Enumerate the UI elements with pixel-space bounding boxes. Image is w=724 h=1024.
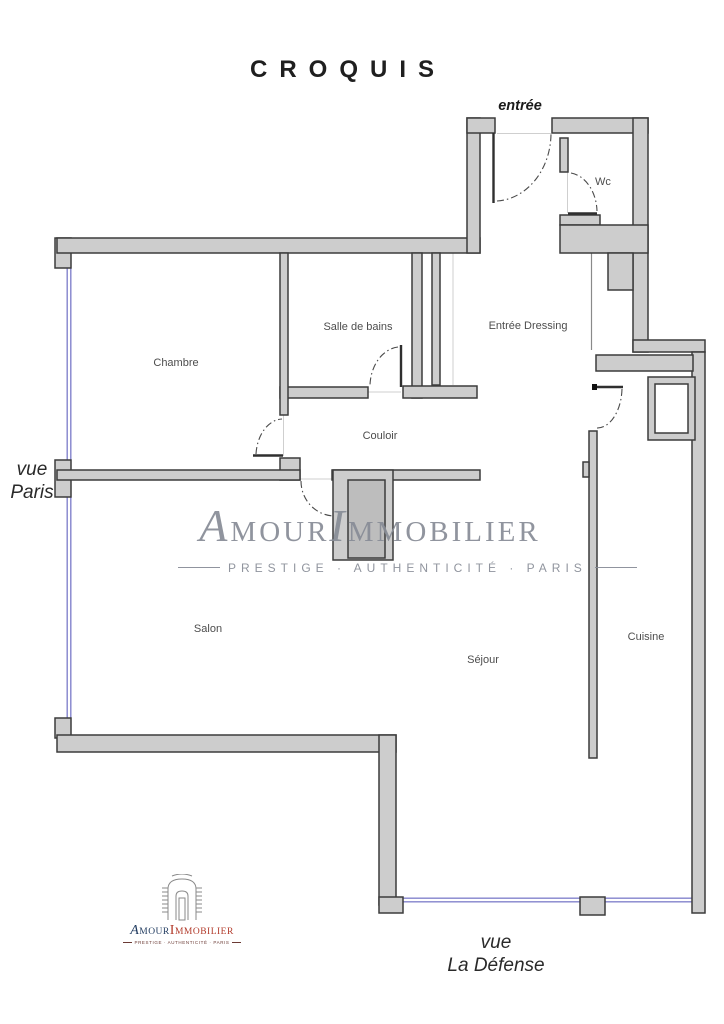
- watermark-mmobilier: MMOBILIER: [348, 516, 541, 548]
- wall-couloir-south-left: [57, 470, 300, 480]
- vue-defense-line1: vue: [376, 931, 616, 954]
- wall-bath-chase-east: [432, 253, 440, 385]
- chambre-door-arc: [256, 419, 282, 454]
- room-label-salon: Salon: [194, 623, 222, 635]
- wall-wc-south-thick: [560, 225, 648, 253]
- room-label-entree-dressing: Entrée Dressing: [489, 320, 568, 332]
- watermark-name: AMOURIMMOBILIER: [170, 503, 570, 560]
- vue-la-defense-label: vue La Défense: [376, 931, 616, 977]
- building-icon: [159, 874, 205, 922]
- vue-paris-line2: Paris: [0, 481, 64, 504]
- kitchen-door-arc: [596, 389, 622, 428]
- wall-step-cap: [379, 897, 403, 913]
- room-label-cuisine: Cuisine: [628, 631, 665, 643]
- watermark-initial-i: I: [329, 500, 347, 551]
- wall-salon-south: [57, 735, 396, 752]
- logo-mmobilier: MMOBILIER: [175, 927, 234, 937]
- wall-entry-west: [467, 118, 480, 253]
- room-label-sejour: Séjour: [467, 654, 499, 666]
- wall-wc-west: [560, 138, 568, 172]
- agency-logo: AMOURIMMOBILIER PRESTIGE · AUTHENTICITÉ …: [118, 874, 246, 945]
- wall-duct: [608, 253, 633, 290]
- wall-dressing-south: [403, 386, 477, 398]
- wall-pillar-south-mid: [580, 897, 605, 915]
- logo-name: AMOURIMMOBILIER: [118, 922, 246, 940]
- wall-sejour-cuisine-divider: [589, 431, 597, 758]
- floor-plan-page: CROQUIS: [0, 0, 724, 1024]
- wall-entry-cap: [467, 118, 495, 133]
- wall-bath-chase-west: [412, 253, 422, 398]
- wall-salon-step: [379, 735, 396, 905]
- wall-chambre-east: [280, 253, 288, 415]
- wall-north: [57, 238, 480, 253]
- wall-divider-bump: [583, 462, 589, 477]
- kitchen-shaft-inner: [655, 384, 688, 433]
- wall-kitchen-north: [633, 340, 705, 352]
- watermark-initial-a: A: [199, 500, 230, 551]
- vue-paris-label: vue Paris: [0, 458, 64, 504]
- logo-subtitle: PRESTIGE · AUTHENTICITÉ · PARIS: [118, 940, 246, 945]
- vue-defense-line2: La Défense: [376, 954, 616, 977]
- agency-watermark: AMOURIMMOBILIER PRESTIGE · AUTHENTICITÉ …: [170, 503, 570, 575]
- wc-door-arc: [571, 173, 597, 211]
- wall-bath-south: [280, 387, 368, 398]
- room-label-chambre: Chambre: [153, 357, 198, 369]
- room-label-couloir: Couloir: [363, 430, 398, 442]
- logo-mour: MOUR: [139, 927, 170, 937]
- wall-wc-south-thin: [560, 215, 600, 225]
- watermark-subtitle: PRESTIGE · AUTHENTICITÉ · PARIS: [170, 561, 570, 575]
- entree-label: entrée: [498, 98, 542, 114]
- kitchen-counter: [596, 355, 693, 371]
- vue-paris-line1: vue: [0, 458, 64, 481]
- room-label-salle-de-bains: Salle de bains: [323, 321, 392, 333]
- entry-door-arc: [497, 132, 551, 201]
- kitchen-door-hinge: [592, 384, 597, 390]
- watermark-mour: MOUR: [230, 516, 329, 548]
- logo-initial-a: A: [130, 923, 139, 938]
- room-label-wc: Wc: [595, 176, 611, 188]
- bath-door-arc: [370, 347, 398, 385]
